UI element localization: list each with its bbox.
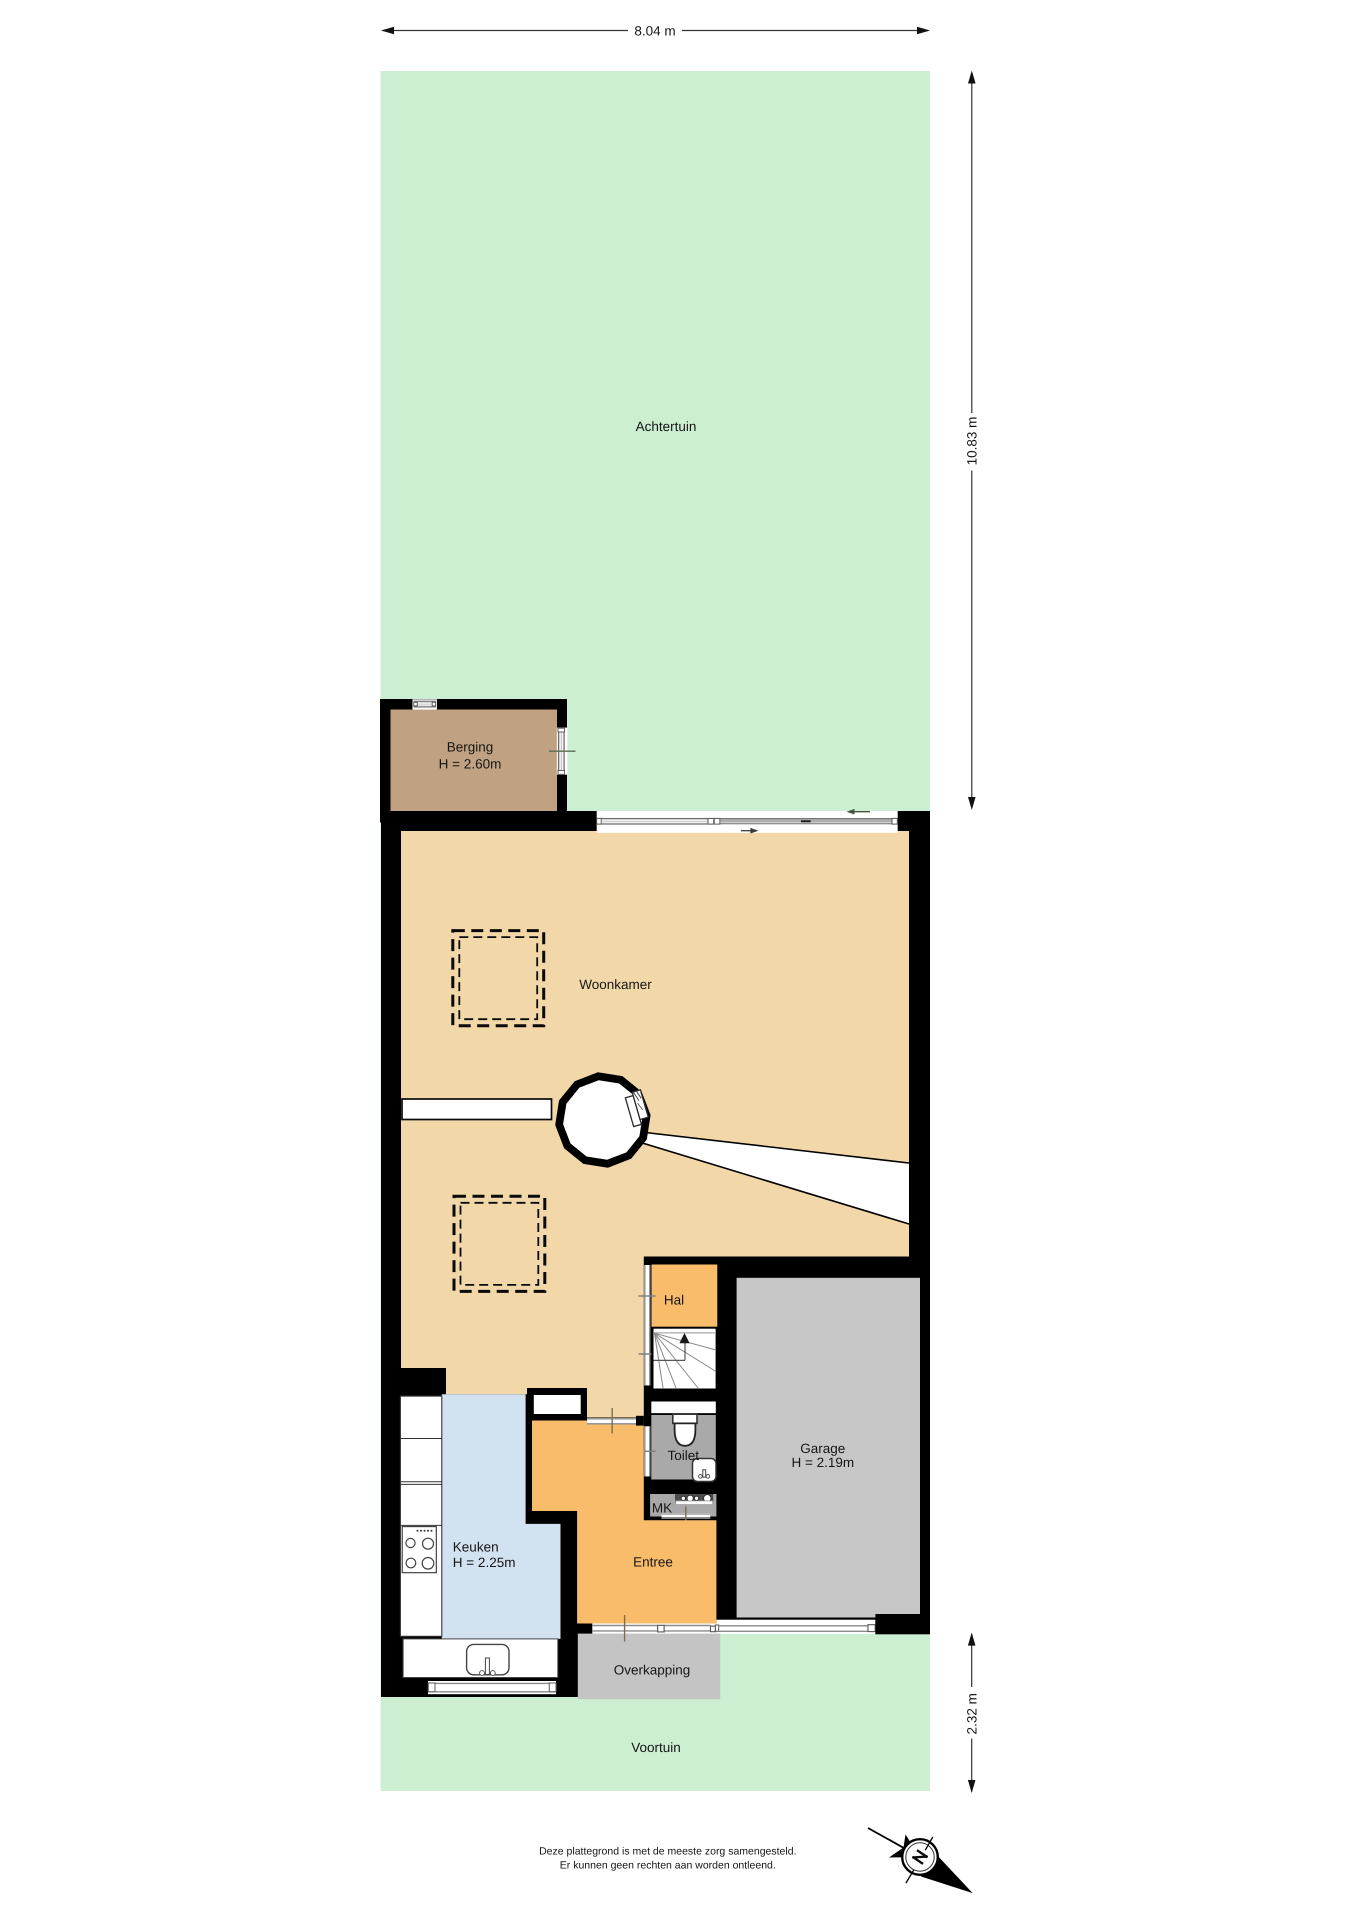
svg-text:Achtertuin: Achtertuin <box>636 419 697 434</box>
svg-text:Er kunnen geen rechten aan wor: Er kunnen geen rechten aan worden ontlee… <box>560 1859 776 1871</box>
svg-text:10.83 m: 10.83 m <box>965 417 980 466</box>
svg-text:H = 2.19m: H = 2.19m <box>791 1455 854 1470</box>
svg-text:H = 2.60m: H = 2.60m <box>439 756 502 771</box>
svg-text:Keuken: Keuken <box>453 1540 499 1555</box>
svg-text:2.32 m: 2.32 m <box>965 1693 980 1734</box>
svg-text:Toilet: Toilet <box>668 1448 700 1463</box>
svg-text:Woonkamer: Woonkamer <box>579 977 652 992</box>
svg-text:Garage: Garage <box>800 1441 845 1456</box>
svg-text:Entree: Entree <box>633 1554 673 1569</box>
svg-text:Deze plattegrond is met de mee: Deze plattegrond is met de meeste zorg s… <box>539 1846 796 1858</box>
svg-text:MK: MK <box>652 1500 672 1515</box>
svg-text:H = 2.25m: H = 2.25m <box>453 1555 516 1570</box>
svg-text:Hal: Hal <box>664 1292 684 1307</box>
svg-text:Voortuin: Voortuin <box>631 1740 681 1755</box>
svg-text:Berging: Berging <box>447 739 494 754</box>
svg-text:8.04 m: 8.04 m <box>634 23 675 38</box>
svg-text:Overkapping: Overkapping <box>614 1662 691 1677</box>
